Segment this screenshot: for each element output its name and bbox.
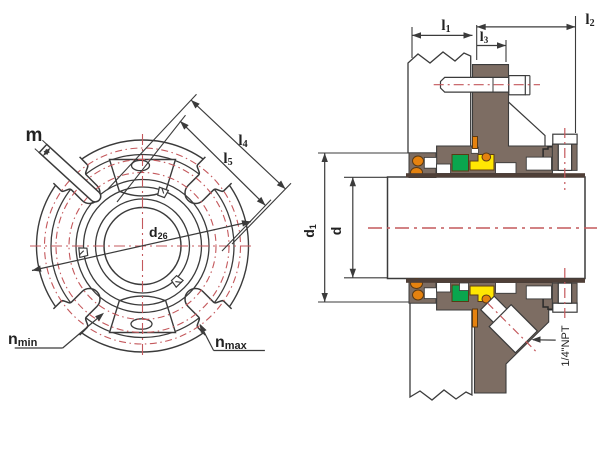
svg-text:1/4"NPT: 1/4"NPT (560, 325, 572, 366)
svg-text:m: m (26, 125, 43, 146)
svg-text:d: d (328, 227, 344, 236)
